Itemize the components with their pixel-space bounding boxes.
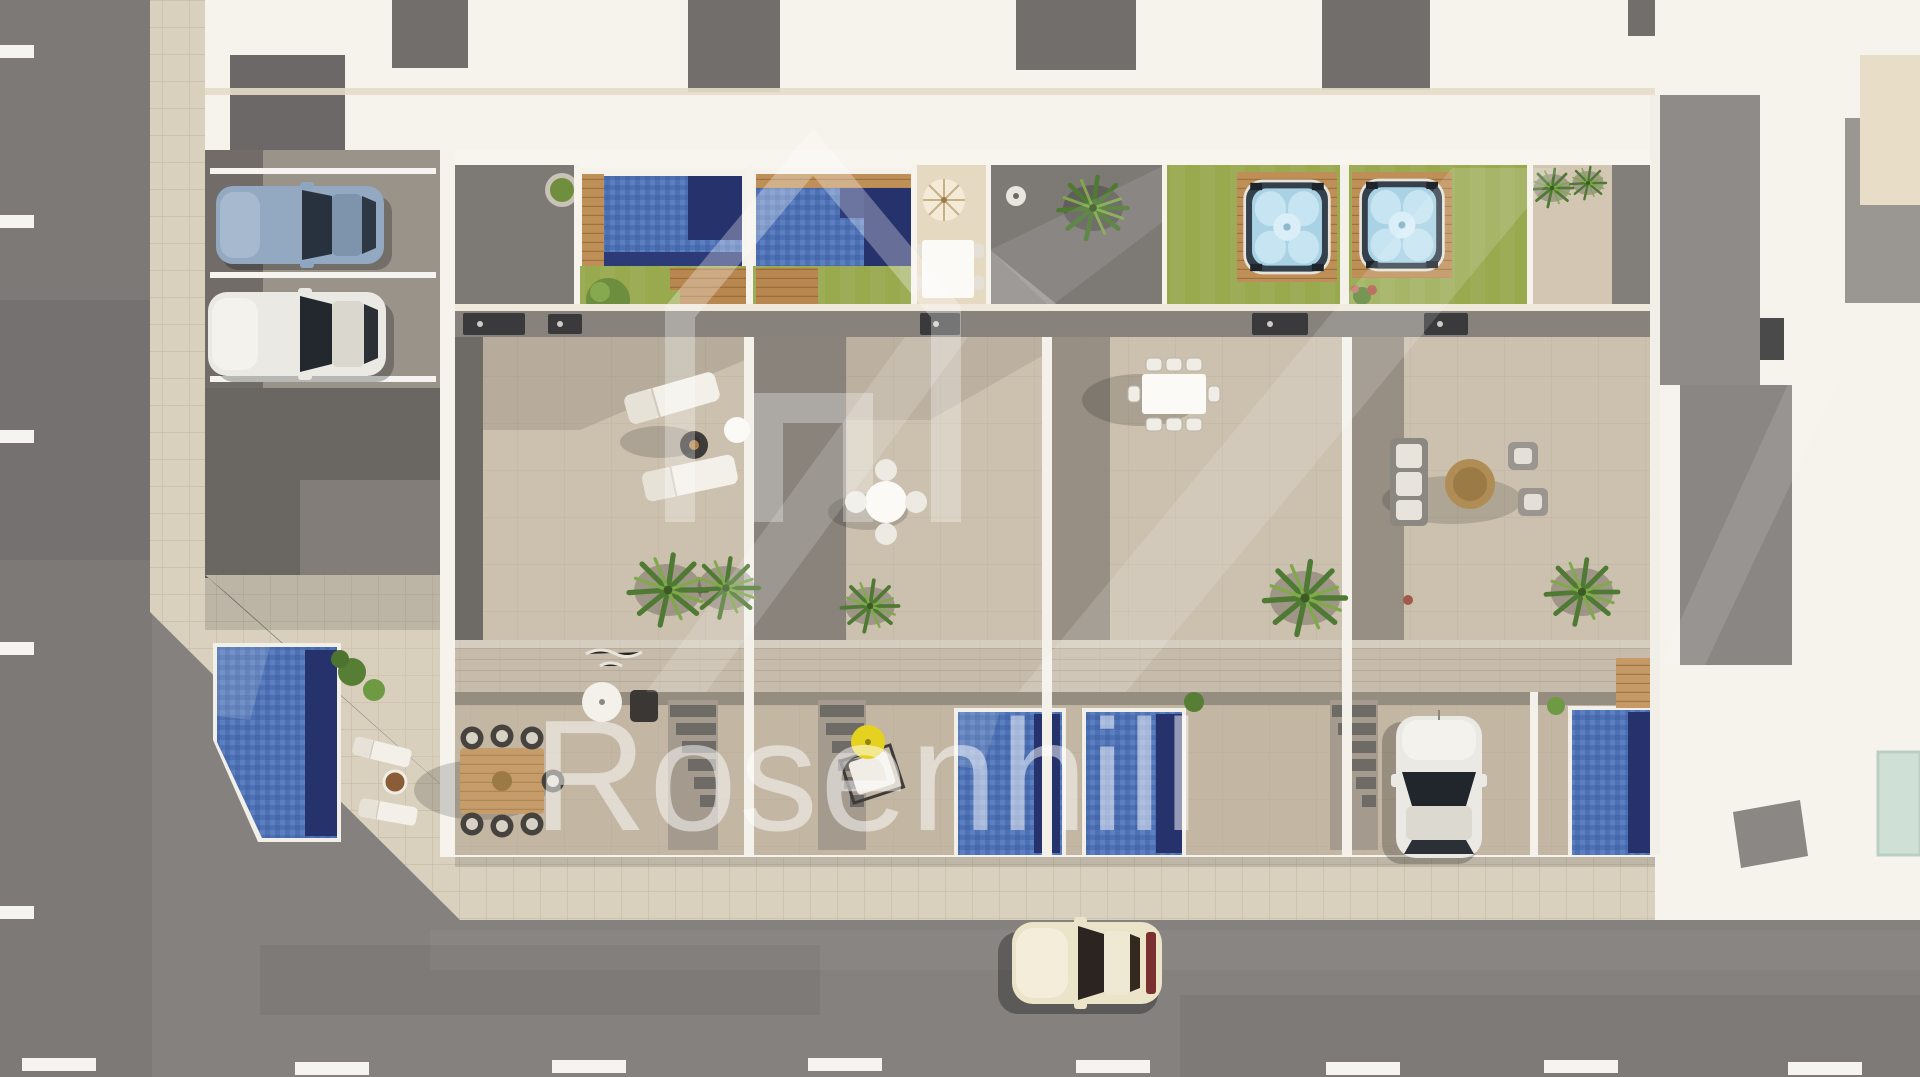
taillight-bar	[1146, 932, 1156, 994]
left-road-dash	[0, 430, 34, 443]
lane-dash	[1788, 1062, 1862, 1075]
roof-court-2	[392, 0, 468, 68]
ground-pool-4	[1568, 706, 1658, 855]
street-car-cream	[998, 917, 1162, 1014]
palm-tree	[1546, 560, 1618, 625]
palm-tree	[1570, 167, 1606, 199]
neighbor-zone-right	[1650, 0, 1920, 920]
parked-car-white	[208, 288, 394, 382]
gray-courtyard	[1658, 95, 1760, 385]
cream-wall-line	[205, 88, 1655, 95]
hot-tub-1	[1245, 181, 1330, 273]
wall-shadow	[455, 337, 483, 640]
brand-watermark-text: Rosenhill	[533, 688, 1201, 864]
parking-zone	[205, 150, 440, 578]
gray-strip-right	[1612, 165, 1655, 307]
stall-line	[210, 272, 436, 278]
lane-dash	[22, 1058, 96, 1071]
fire-table	[384, 771, 406, 793]
left-road-dash	[0, 906, 34, 919]
tilted-panel	[1733, 800, 1808, 868]
staircase	[1330, 700, 1378, 850]
bbq-counter	[463, 313, 525, 335]
fern-plant	[1265, 562, 1346, 635]
shrub	[331, 650, 349, 668]
boundary-wall	[1650, 95, 1660, 855]
glass-skylight	[1878, 752, 1920, 855]
bbq-counter	[1252, 313, 1308, 335]
side-table	[724, 417, 750, 443]
left-road-dash	[0, 642, 34, 655]
roof-court-6	[1016, 0, 1136, 70]
divider-wall	[1530, 692, 1538, 855]
beige-building	[1860, 55, 1920, 205]
lane-dash	[808, 1058, 882, 1071]
divider-wall	[1042, 337, 1052, 640]
shrub	[363, 679, 385, 701]
divider-wall	[1340, 165, 1349, 307]
roof-inset	[300, 480, 440, 576]
lane-dash	[1544, 1060, 1618, 1073]
shrub	[1547, 697, 1565, 715]
left-road-dash	[0, 215, 34, 228]
stall-line	[210, 168, 436, 174]
palm-tree	[842, 580, 899, 631]
tiny-figure	[1403, 595, 1413, 605]
bbq-grill	[548, 314, 582, 334]
round-bush	[550, 178, 574, 202]
divider-wall	[1342, 692, 1352, 855]
roof-court-9	[1322, 0, 1430, 90]
roof-court-4	[688, 0, 780, 92]
aerial-render: Rosenhill	[0, 0, 1920, 1077]
lane-dash	[1326, 1062, 1400, 1075]
lane-dash	[295, 1062, 369, 1075]
roof-court-1	[230, 55, 345, 150]
window-slot	[1760, 318, 1784, 360]
dining-table	[1142, 374, 1206, 414]
render-canvas: Rosenhill	[0, 0, 1920, 1077]
parked-car-blue	[216, 182, 392, 270]
lane-dash	[552, 1060, 626, 1073]
driveway-car-white	[1382, 710, 1487, 864]
lane-dash	[1076, 1060, 1150, 1073]
left-road-dash	[0, 45, 34, 58]
beach-parasol	[923, 179, 965, 221]
corner-shadow	[205, 575, 455, 630]
bbq-band	[455, 304, 1655, 337]
terrace-band	[455, 337, 1655, 640]
